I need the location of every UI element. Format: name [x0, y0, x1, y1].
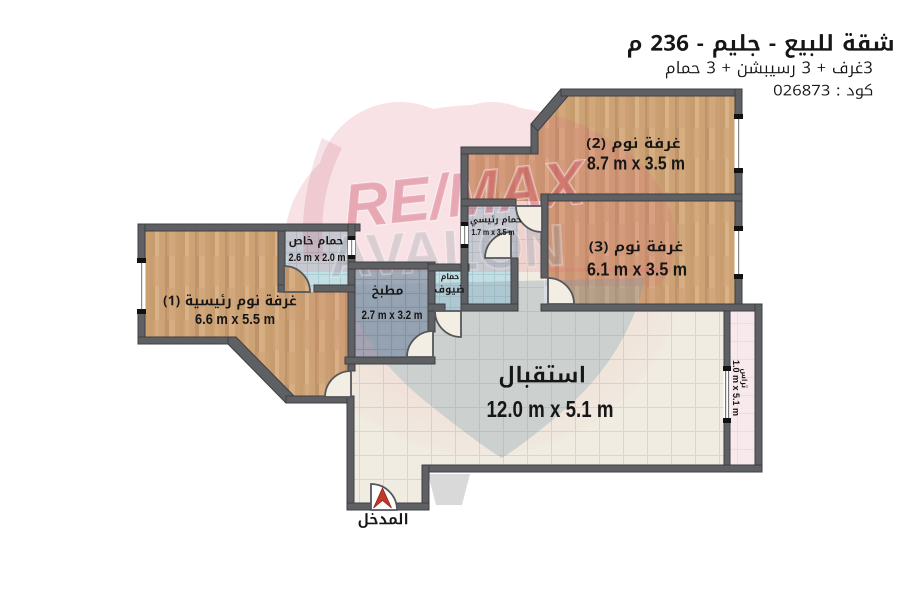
svg-text:1.0 m x 5.1 m: 1.0 m x 5.1 m: [731, 360, 741, 416]
svg-text:6.1 m x 3.5 m: 6.1 m x 3.5 m: [587, 260, 687, 280]
svg-text:12.0 m x 5.1 m: 12.0 m x 5.1 m: [487, 396, 614, 422]
svg-text:1.7 m x 3.5 m: 1.7 m x 3.5 m: [472, 227, 515, 237]
svg-text:2.6 m x 2.0 m: 2.6 m x 2.0 m: [289, 252, 346, 264]
svg-text:8.7 m x 3.5 m: 8.7 m x 3.5 m: [587, 154, 685, 174]
svg-text:2.7 m x 3.2 m: 2.7 m x 3.2 m: [362, 310, 423, 322]
svg-text:6.6 m x 5.5 m: 6.6 m x 5.5 m: [195, 311, 275, 328]
